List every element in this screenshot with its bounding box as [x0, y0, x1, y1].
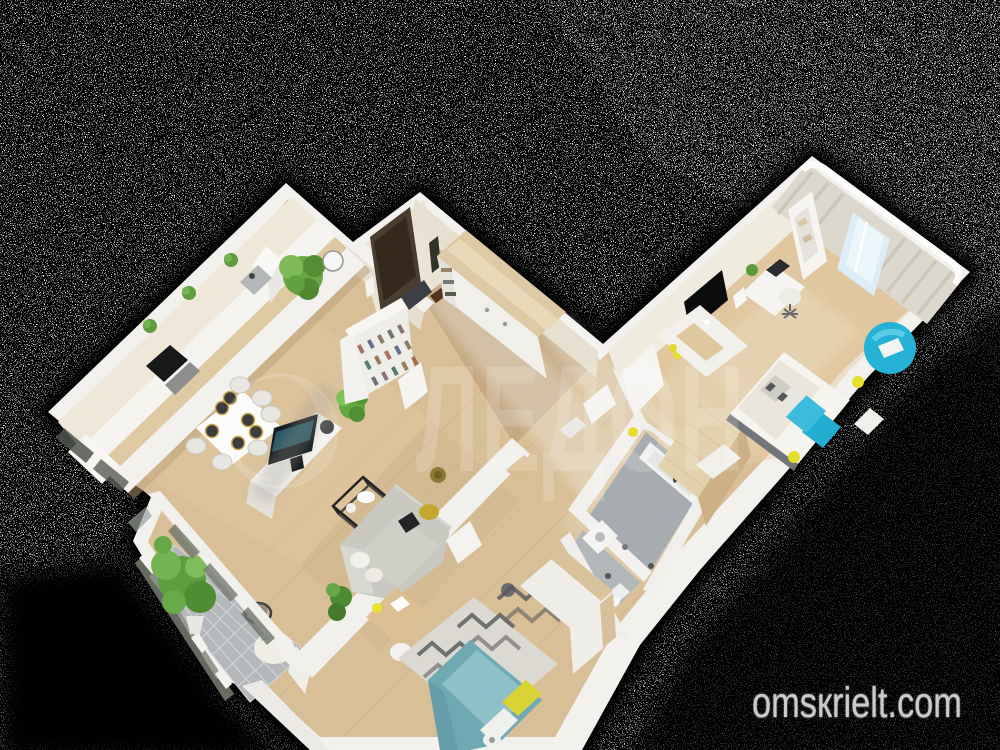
svg-text:ЛЕДОН: ЛЕДОН	[416, 335, 746, 504]
svg-text:omsкrielt.com: omsкrielt.com	[752, 679, 962, 726]
